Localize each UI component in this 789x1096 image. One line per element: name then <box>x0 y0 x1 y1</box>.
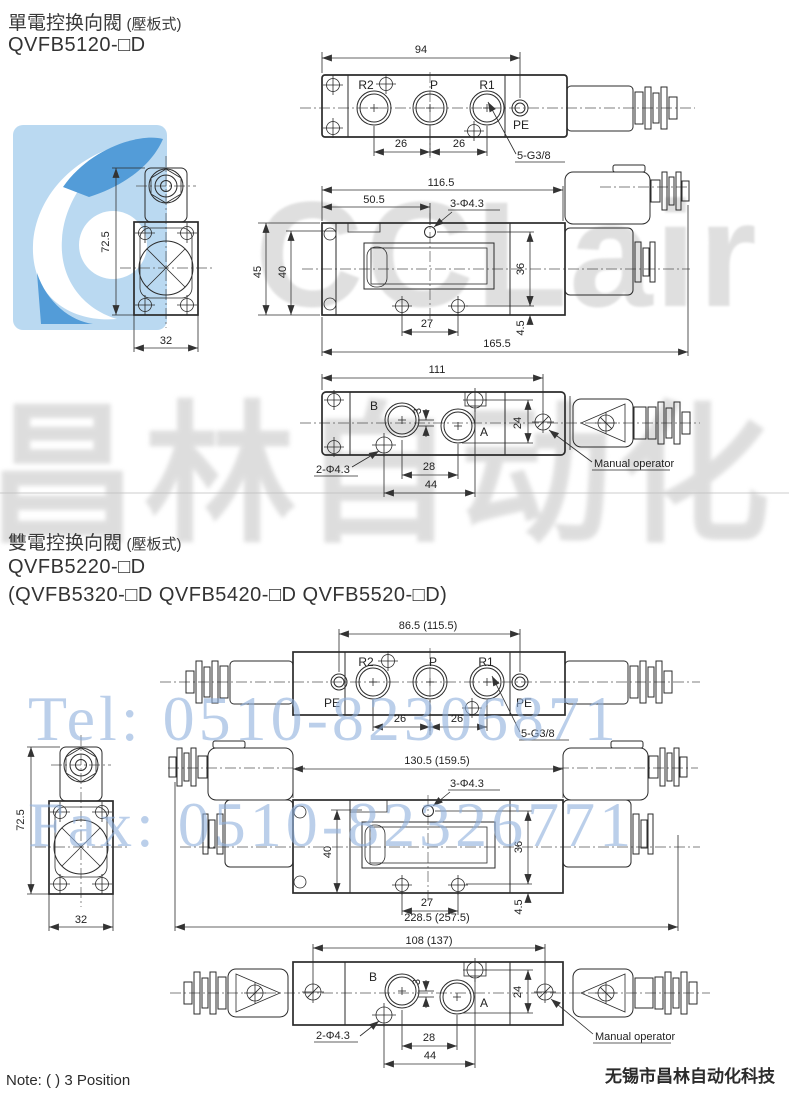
port-label: R1 <box>479 78 495 92</box>
dim-label: 116.5 <box>428 177 455 189</box>
manual-operator-label: Manual operator <box>595 1031 675 1043</box>
dim-label: 3 <box>411 979 423 985</box>
port-label: A <box>480 996 488 1010</box>
dim-label: 130.5 (159.5) <box>404 755 469 767</box>
section1-model: QVFB5120-□D <box>8 34 146 57</box>
sec1-bottom-view-drawing: 111 B A 3 24 2-Φ4.3 28 44 Manual operato… <box>300 364 700 497</box>
thread-note: 5-G3/8 <box>517 150 551 162</box>
port-label: B <box>370 399 378 413</box>
dim-label: 28 <box>423 1032 435 1044</box>
fax-watermark: Fax: 0510-82326771 <box>28 788 635 862</box>
dim-label: 86.5 (115.5) <box>399 620 458 632</box>
manual-operator-label: Manual operator <box>594 458 674 470</box>
sec1-end-view-drawing: 72.5 32 <box>100 156 212 352</box>
tel-watermark: Tel: 0510-82306871 <box>28 682 620 756</box>
footer-note: Note: ( ) 3 Position <box>6 1072 130 1089</box>
dim-label: 228.5 (257.5) <box>404 912 469 924</box>
dim-label: 3 <box>412 408 424 414</box>
section2-title-note: (壓板式) <box>126 536 181 553</box>
dim-label: 4.5 <box>515 320 527 335</box>
dim-label: 4.5 <box>513 899 525 914</box>
datasheet-page: CCLair 昌林自动化 Tel: 0510-82306871 Fax: 051… <box>0 0 789 1096</box>
port-label: R2 <box>358 78 374 92</box>
section2-alt-models: (QVFB5320-□D QVFB5420-□D QVFB5520-□D) <box>8 584 447 607</box>
dim-label: 36 <box>515 263 527 275</box>
dim-label: 44 <box>424 1050 436 1062</box>
dim-label: 165.5 <box>483 338 511 350</box>
dim-label: 72.5 <box>15 809 27 830</box>
section2-model: QVFB5220-□D <box>8 556 146 579</box>
dim-label: 28 <box>423 461 435 473</box>
dim-label: 44 <box>425 479 437 491</box>
port-label: A <box>480 425 488 439</box>
dim-label: 108 (137) <box>405 935 452 947</box>
section2-title-text: 雙電控换向閥 <box>8 533 122 554</box>
section1-title-note: (壓板式) <box>126 16 181 33</box>
dim-label: 45 <box>252 266 264 278</box>
hole-note: 3-Φ4.3 <box>450 198 484 210</box>
dim-label: 32 <box>75 914 87 926</box>
port-label: R1 <box>478 655 494 669</box>
dim-label: 24 <box>512 986 524 998</box>
port-label: P <box>430 78 438 92</box>
dim-label: 26 <box>453 138 465 150</box>
hole-note: 2-Φ4.3 <box>316 1030 350 1042</box>
hole-note: 2-Φ4.3 <box>316 464 350 476</box>
footer-company: 无锡市昌林自动化科技 <box>605 1062 775 1087</box>
sec1-side-view-drawing: 116.5 50.5 3-Φ4.3 45 40 36 4.5 27 165.5 <box>252 165 690 356</box>
dim-label: 27 <box>421 897 433 909</box>
dim-label: 72.5 <box>100 231 112 252</box>
port-label: B <box>369 970 377 984</box>
port-label: R2 <box>358 655 374 669</box>
section1-title-text: 單電控换向閥 <box>8 13 122 34</box>
section2-title: 雙電控换向閥 (壓板式) <box>8 528 181 555</box>
dim-label: 27 <box>421 318 433 330</box>
sec1-top-view-drawing: 94 26 26 R2 P R1 PE 5-G3/8 <box>300 44 695 162</box>
sec2-bottom-view-drawing: 108 (137) B A 3 24 2-Φ4.3 28 44 Manual o… <box>170 935 710 1068</box>
section1-title: 單電控换向閥 (壓板式) <box>8 8 181 35</box>
port-label: P <box>429 655 437 669</box>
dim-label: 26 <box>395 138 407 150</box>
port-label: PE <box>513 118 529 132</box>
dim-label: 40 <box>277 266 289 278</box>
dim-label: 94 <box>415 44 427 56</box>
dim-label: 111 <box>429 364 446 376</box>
dim-label: 50.5 <box>363 194 384 206</box>
dim-label: 24 <box>512 417 524 429</box>
dim-label: 32 <box>160 335 172 347</box>
